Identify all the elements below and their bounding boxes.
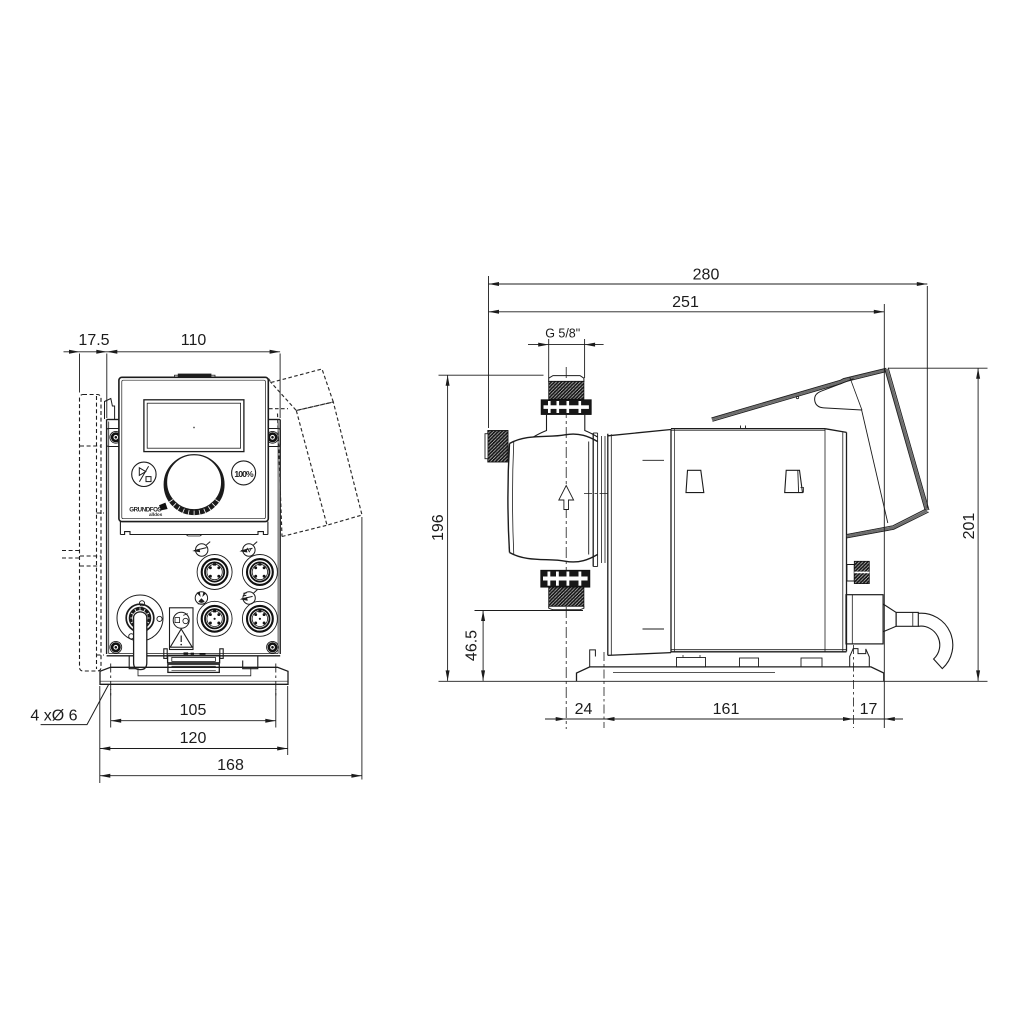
svg-text:G 5/8": G 5/8" (545, 326, 580, 340)
svg-text:161: 161 (713, 701, 740, 718)
svg-text:280: 280 (693, 266, 720, 283)
svg-text:105: 105 (180, 702, 207, 719)
svg-text:251: 251 (672, 294, 699, 311)
svg-text:46.5: 46.5 (464, 630, 481, 661)
svg-text:110: 110 (181, 332, 207, 349)
svg-text:168: 168 (217, 757, 244, 774)
svg-text:24: 24 (575, 701, 593, 718)
svg-text:196: 196 (430, 514, 447, 541)
svg-text:120: 120 (180, 730, 207, 747)
svg-text:17.5: 17.5 (78, 332, 109, 349)
svg-text:alldos: alldos (149, 512, 163, 517)
svg-text:100%: 100% (234, 469, 254, 479)
svg-text:201: 201 (961, 513, 978, 540)
svg-text:17: 17 (860, 701, 878, 718)
svg-text:4 xØ 6: 4 xØ 6 (30, 708, 77, 725)
